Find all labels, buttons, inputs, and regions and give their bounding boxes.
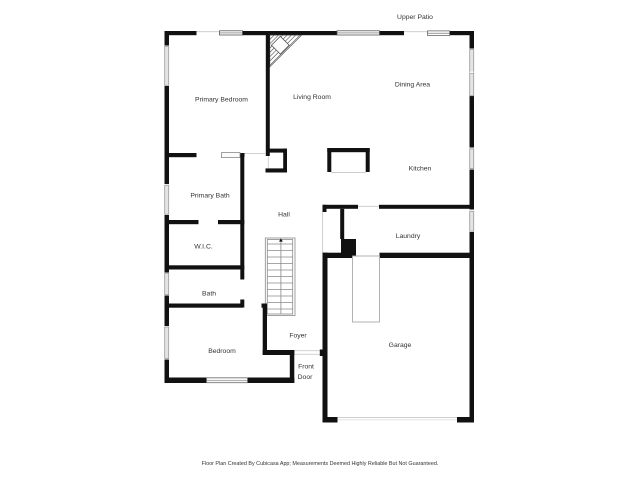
svg-text:Primary Bedroom: Primary Bedroom [195, 97, 248, 104]
svg-text:Door: Door [298, 374, 313, 381]
svg-text:Living Room: Living Room [293, 94, 331, 101]
svg-text:Bath: Bath [202, 291, 216, 298]
svg-text:Kitchen: Kitchen [409, 166, 432, 173]
svg-text:Garage: Garage [389, 342, 412, 349]
svg-text:Bedroom: Bedroom [208, 348, 236, 355]
svg-text:Hall: Hall [278, 212, 290, 219]
svg-text:Front: Front [298, 363, 314, 370]
svg-text:Primary Bath: Primary Bath [190, 193, 230, 200]
svg-text:Foyer: Foyer [289, 333, 307, 340]
svg-text:Dining Area: Dining Area [395, 82, 430, 89]
svg-text:Laundry: Laundry [396, 233, 421, 240]
svg-text:Floor Plan Created By Cubicasa: Floor Plan Created By Cubicasa App; Meas… [202, 461, 439, 467]
svg-text:W.I.C.: W.I.C. [194, 244, 213, 251]
svg-text:Upper Patio: Upper Patio [397, 14, 433, 21]
